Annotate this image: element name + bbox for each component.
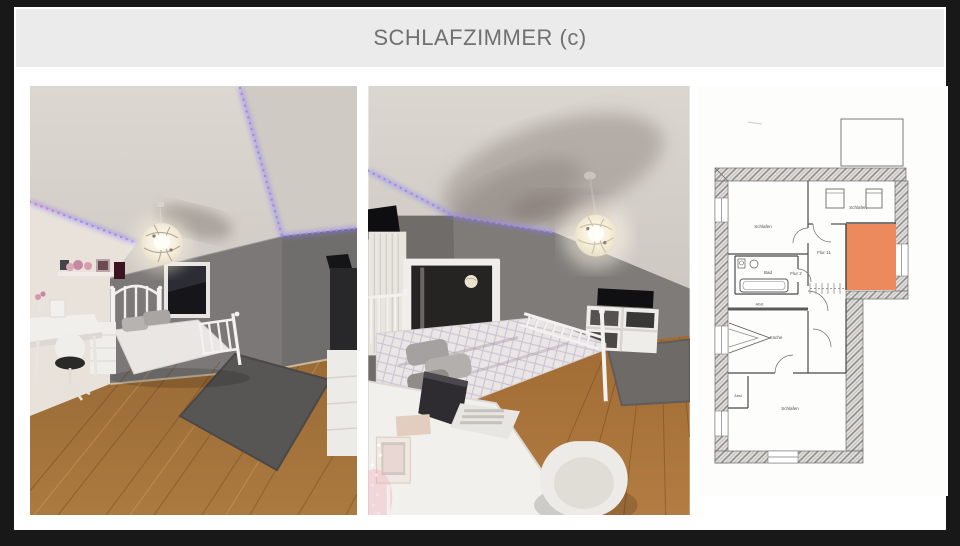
- room-label-abst-lower: Abst: [734, 394, 743, 398]
- room-label-kueche: Küche: [770, 335, 783, 340]
- room-label-abst-upper: Abst.: [756, 303, 765, 307]
- screenshot-stage: SCHLAFZIMMER (c): [0, 0, 960, 546]
- room-label-flur-lower: Flur 2: [790, 271, 802, 276]
- listing-image-window: SCHLAFZIMMER (c): [14, 7, 946, 530]
- page-title: SCHLAFZIMMER (c): [373, 25, 586, 51]
- image-title-bar: SCHLAFZIMMER (c): [16, 9, 944, 67]
- bedroom-photo-1[interactable]: [30, 86, 357, 515]
- highlighted-room: [846, 224, 896, 290]
- floorplan-image[interactable]: Schlafen Schlafen Flur 11 Flur 2 Bad Abs…: [698, 86, 948, 496]
- room-label-flur-upper: Flur 11: [817, 250, 831, 255]
- room-label-schlafen-bottom: Schlafen: [781, 406, 799, 411]
- room-label-schlafen-top: Schlafen: [849, 205, 867, 210]
- floorplan-panel: Schlafen Schlafen Flur 11 Flur 2 Bad Abs…: [690, 86, 946, 515]
- room-label-bad: Bad: [764, 270, 773, 275]
- room-label-schlafen-left: Schlafen: [754, 224, 772, 229]
- bedroom-photo-2[interactable]: [368, 86, 690, 515]
